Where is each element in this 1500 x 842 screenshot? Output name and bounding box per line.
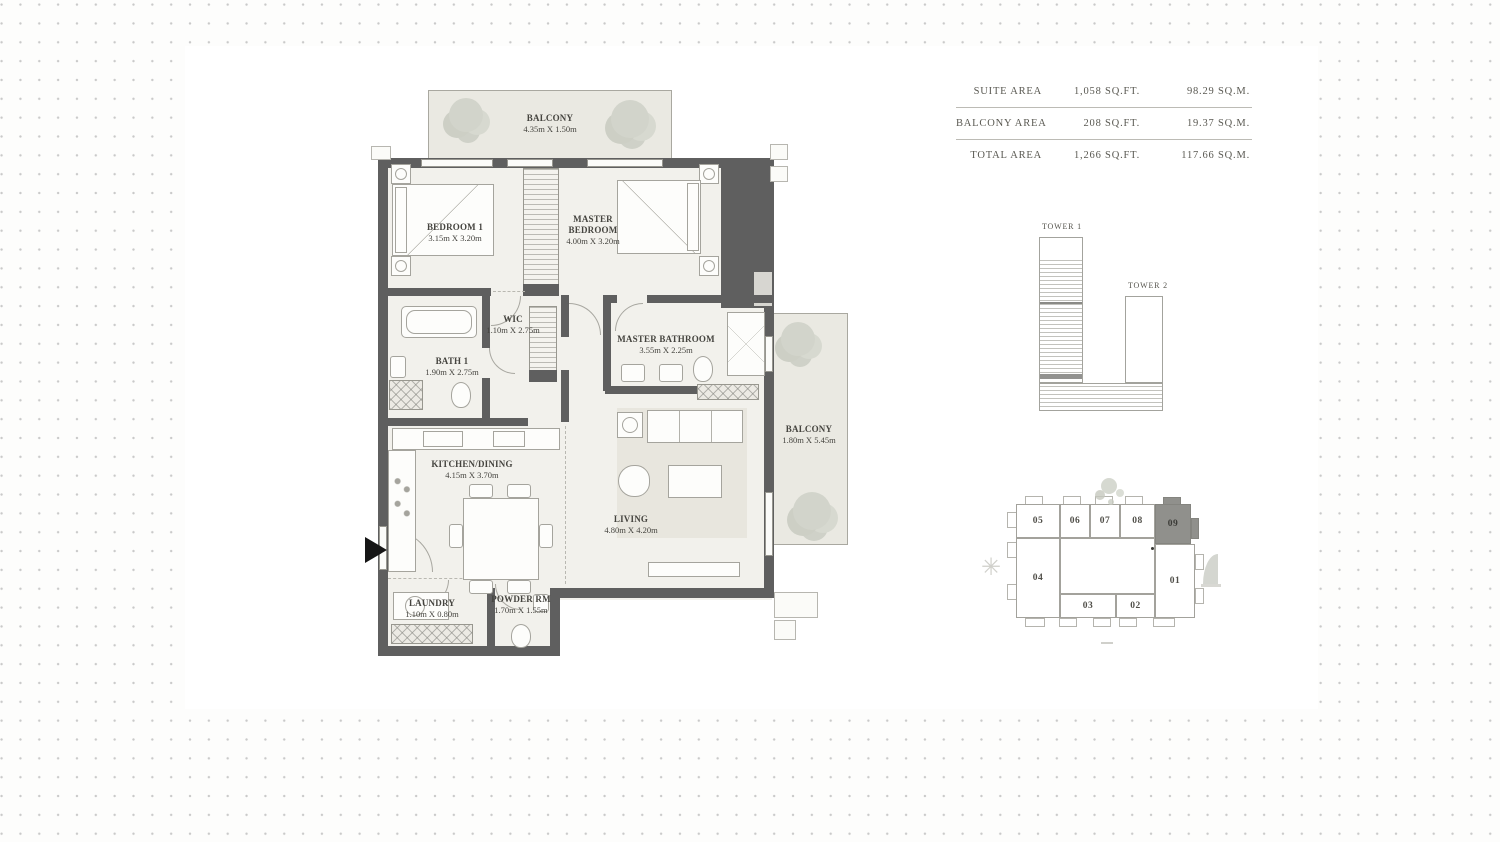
area-sqm: 19.37 SQ.M.	[1140, 118, 1250, 129]
wall	[550, 588, 560, 656]
exterior-stub	[371, 146, 391, 160]
keyplan-tab	[1059, 618, 1077, 627]
area-sqft: 208 SQ.FT.	[1042, 118, 1140, 129]
keyplan-unit-05: 05	[1016, 504, 1060, 538]
tv-console	[648, 562, 740, 577]
room-label-bedroom1: BEDROOM 1 3.15m X 3.20m	[427, 222, 483, 243]
sink	[390, 356, 406, 378]
table-row: TOTAL AREA 1,266 SQ.FT. 117.66 SQ.M.	[956, 140, 1252, 171]
room-label-master-bathroom: MASTER BATHROOM 3.55m X 2.25m	[617, 334, 715, 355]
podium-floors	[1040, 386, 1162, 408]
room-label-bath1: BATH 1 1.90m X 2.75m	[425, 356, 478, 377]
keyplan-unit-01: 01	[1155, 544, 1195, 618]
exterior-step	[774, 620, 796, 640]
ferris-wheel-icon: ✳	[981, 556, 1001, 580]
pillows	[395, 187, 407, 253]
tower2	[1125, 296, 1163, 383]
tower1-highlight-floor	[1040, 374, 1082, 379]
area-sqft: 1,266 SQ.FT.	[1042, 150, 1140, 161]
table-row: SUITE AREA 1,058 SQ.FT. 98.29 SQ.M.	[956, 76, 1252, 107]
chair	[469, 484, 493, 498]
area-label: TOTAL AREA	[956, 150, 1042, 161]
wall	[388, 288, 491, 296]
sail-building-base	[1201, 584, 1221, 587]
lamp	[622, 417, 638, 433]
shaft	[389, 380, 423, 410]
room-label-balcony-top: BALCONY 4.35m X 1.50m	[523, 113, 576, 134]
lamp	[703, 260, 715, 272]
chair	[539, 524, 553, 548]
kitchen-sink	[423, 431, 463, 447]
keyplan-tab	[1025, 618, 1045, 627]
keyplan-unit-07: 07	[1090, 504, 1120, 538]
lamp	[395, 260, 407, 272]
room-label-kitchen-dining: KITCHEN/DINING 4.15m X 3.70m	[431, 459, 512, 480]
linen-closet	[697, 384, 759, 400]
tower-diagram: TOWER 1 TOWER 2	[1035, 220, 1170, 425]
keyplan-unit-03: 03	[1060, 594, 1116, 618]
area-label: SUITE AREA	[956, 86, 1042, 97]
balcony-door	[507, 159, 553, 167]
keyplan-tab	[1119, 618, 1137, 627]
wall	[378, 158, 388, 656]
sail-building-icon	[1203, 554, 1218, 584]
location-dot	[1151, 547, 1154, 550]
shaft	[391, 624, 473, 644]
lamp	[395, 168, 407, 180]
window	[421, 159, 493, 167]
area-label: BALCONY AREA	[956, 118, 1042, 129]
window	[765, 492, 773, 556]
coffee-table	[668, 465, 722, 498]
plant-icon	[793, 492, 831, 530]
exterior-stub	[770, 144, 788, 160]
armchair	[618, 465, 650, 497]
dining-table	[463, 498, 539, 580]
dashed-line	[565, 426, 566, 584]
area-table: SUITE AREA 1,058 SQ.FT. 98.29 SQ.M. BALC…	[956, 76, 1252, 171]
chair	[507, 484, 531, 498]
wall	[388, 418, 528, 426]
keyplan-unit-02: 02	[1116, 594, 1155, 618]
lamp	[703, 168, 715, 180]
wall	[523, 284, 559, 296]
keyplan-unit-08: 08	[1120, 504, 1155, 538]
tower1-band	[1040, 302, 1082, 304]
room-label-laundry: LAUNDRY 1.10m X 0.80m	[405, 598, 458, 619]
table-row: BALCONY AREA 208 SQ.FT. 19.37 SQ.M.	[956, 108, 1252, 139]
plant-icon	[449, 98, 483, 132]
area-sqft: 1,058 SQ.FT.	[1042, 86, 1140, 97]
wall	[482, 378, 490, 422]
toilet	[693, 356, 713, 382]
balcony-door	[765, 336, 773, 372]
keyplan-tab	[1195, 554, 1204, 570]
tower1-label: TOWER 1	[1042, 222, 1082, 231]
exterior-step	[774, 592, 818, 618]
plant-icon	[781, 322, 815, 356]
wall	[647, 295, 773, 303]
wall	[529, 370, 557, 382]
wall	[605, 386, 697, 394]
sofa	[647, 410, 743, 443]
room-label-living: LIVING 4.80m X 4.20m	[604, 514, 657, 535]
room-label-wic: WIC 1.10m X 2.75m	[486, 314, 539, 335]
keyplan-tab	[1093, 618, 1111, 627]
wall	[561, 295, 569, 337]
room-label-master-bedroom: MASTER BEDROOM 4.00m X 3.20m	[561, 214, 625, 246]
chair	[449, 524, 463, 548]
bed	[392, 184, 494, 256]
room-label-powder: POWDER RM 1.70m X 1.55m	[491, 594, 551, 615]
room-label-balcony-right: BALCONY 1.80m X 5.45m	[782, 424, 835, 445]
wall	[378, 646, 560, 656]
page: SUITE AREA 1,058 SQ.FT. 98.29 SQ.M. BALC…	[0, 0, 1500, 842]
sink	[621, 364, 645, 382]
area-sqm: 117.66 SQ.M.	[1140, 150, 1250, 161]
tower2-label: TOWER 2	[1128, 281, 1168, 290]
tower1	[1039, 237, 1083, 383]
wall	[561, 370, 569, 422]
podium	[1039, 383, 1163, 411]
plant-icon	[611, 100, 649, 138]
tower1-floors	[1040, 260, 1082, 374]
wall	[603, 295, 611, 391]
bathtub-inner	[406, 310, 472, 334]
keyplan-unit-04: 04	[1016, 538, 1060, 618]
floor-plan: BALCONY 4.35m X 1.50m BALCONY 1.80m X 5.…	[365, 80, 865, 665]
keyplan-core	[1060, 538, 1155, 594]
toilet	[511, 624, 531, 648]
keyplan-unit-09-tab	[1191, 518, 1199, 539]
area-sqm: 98.29 SQ.M.	[1140, 86, 1250, 97]
stove	[391, 474, 413, 522]
tick-mark	[1101, 642, 1113, 644]
toilet	[451, 382, 471, 408]
window	[587, 159, 663, 167]
chair	[507, 580, 531, 594]
pillows	[687, 183, 699, 251]
wardrobe	[523, 168, 559, 286]
key-plan: 05 06 07 08 09 01 02 03 04 ✳	[1003, 476, 1215, 651]
tree-icon	[1101, 478, 1117, 494]
shower	[727, 312, 765, 376]
sink	[659, 364, 683, 382]
chair	[469, 580, 493, 594]
keyplan-unit-06: 06	[1060, 504, 1090, 538]
keyplan-unit-09: 09	[1155, 504, 1191, 544]
wall	[550, 588, 774, 598]
keyplan-tab	[1195, 588, 1204, 604]
exterior-stub	[770, 166, 788, 182]
dashed-line	[493, 291, 525, 292]
keyplan-tab	[1153, 618, 1175, 627]
entrance-arrow-icon	[365, 537, 387, 563]
kitchen-counter	[392, 428, 560, 450]
dishwasher	[493, 431, 525, 447]
